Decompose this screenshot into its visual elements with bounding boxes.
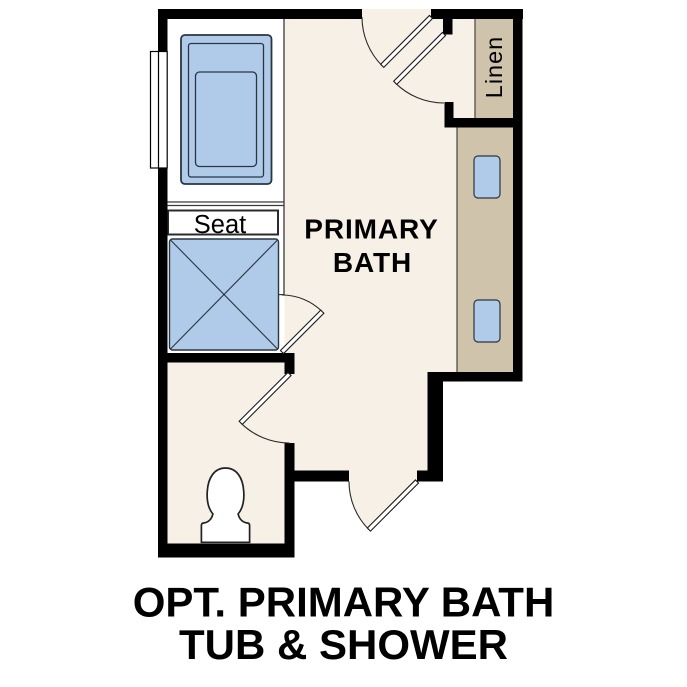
svg-text:Linen: Linen <box>481 36 507 99</box>
svg-text:Seat: Seat <box>194 211 246 239</box>
svg-text:PRIMARY: PRIMARY <box>304 214 438 245</box>
svg-text:OPT. PRIMARY BATH: OPT. PRIMARY BATH <box>133 579 555 626</box>
svg-text:BATH: BATH <box>333 247 412 278</box>
svg-text:TUB & SHOWER: TUB & SHOWER <box>179 621 508 668</box>
